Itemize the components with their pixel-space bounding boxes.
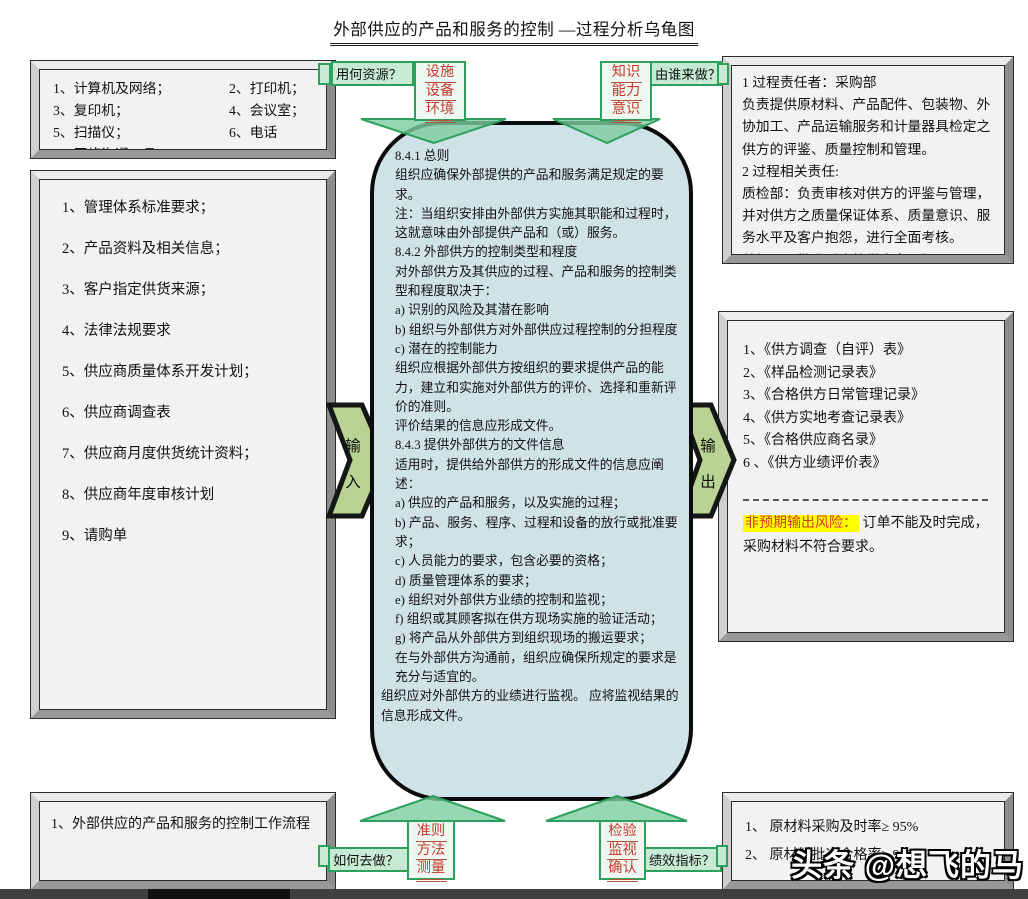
work-flow-box: 1、外部供应的产品和服务的控制工作流程 xyxy=(30,792,336,890)
process-paragraph: 组织应对外部供方的业绩进行监视。 应将监视结果的信息形成文件。 xyxy=(381,687,683,726)
check-arrow-head xyxy=(545,795,689,823)
process-paragraph: c) 人员能力的要求，包含必要的资格； xyxy=(395,552,683,571)
responsibility-line: 2 过程相关责任: xyxy=(742,161,996,183)
stem-word: 方法 xyxy=(416,843,447,861)
work-flow-box-bevel: 1、外部供应的产品和服务的控制工作流程 xyxy=(31,793,335,889)
output-arrow-label: 输 出 xyxy=(693,429,723,501)
inputs-box-bevel: 1、管理体系标准要求；2、产品资料及相关信息；3、客户指定供货来源；4、法律法规… xyxy=(31,171,335,718)
output-char-2: 出 xyxy=(693,465,723,501)
input-char-2: 入 xyxy=(338,465,368,501)
resources-list: 1、计算机及网络；2、打印机；3、复印机；4、会议室；5、扫描仪；6、电话7、网… xyxy=(39,69,327,150)
responsibility-text: 1 过程责任者：采购部负责提供原材料、产品配件、包装物、外协加工、产品运输服务和… xyxy=(731,65,1005,255)
stem-word: 环境 xyxy=(425,102,456,123)
process-paragraph: a) 供应的产品和服务，以及实施的过程； xyxy=(395,494,683,513)
responsibility-box-bevel: 1 过程责任者：采购部负责提供原材料、产品配件、包装物、外协加工、产品运输服务和… xyxy=(723,57,1013,263)
question-who: 由谁来做？ xyxy=(650,61,723,86)
who-arrow-head xyxy=(552,118,662,145)
stem-word: 设备 xyxy=(425,84,456,102)
kpi-item: 1、 原材料采购及时率≥ 95% xyxy=(745,814,998,842)
connector-handle xyxy=(318,845,330,867)
input-item: 1、管理体系标准要求； xyxy=(62,197,318,219)
check-arrow-stem: 检验监视确认 xyxy=(599,820,646,880)
work-flow-list: 1、外部供应的产品和服务的控制工作流程 xyxy=(39,801,327,881)
stem-word: 监视 xyxy=(607,843,638,861)
responsibility-box: 1 过程责任者：采购部负责提供原材料、产品配件、包装物、外协加工、产品运输服务和… xyxy=(722,56,1014,264)
stem-word: 确认 xyxy=(607,861,638,882)
risk-highlight-label: 非预期输出风险： xyxy=(743,515,859,532)
input-item: 7、供应商月度供货统计资料； xyxy=(62,443,318,465)
output-item: 5、《合格供应商名录》 xyxy=(743,430,994,453)
process-paragraph: c) 潜在的控制能力 xyxy=(395,340,683,359)
work-flow-item: 1、外部供应的产品和服务的控制工作流程 xyxy=(51,814,320,835)
outputs-list: 1、《供方调查（自评）表》2、《样品检测记录表》3、《合格供方日常管理记录》4、… xyxy=(743,340,994,475)
dashed-divider xyxy=(743,499,988,501)
process-paragraph: 对外部供方及其供应的过程、产品和服务的控制类型和程度取决于： xyxy=(395,263,683,302)
stem-word: 意识 xyxy=(611,102,642,123)
question-kpi: 绩效指标？ xyxy=(644,847,722,872)
connector-handle xyxy=(717,63,729,85)
responsibility-line: 负责提供原材料、产品配件、包装物、外协加工、产品运输服务和计量器具检定之供方的评… xyxy=(742,94,996,161)
resources-box-bevel: 1、计算机及网络；2、打印机；3、复印机；4、会议室；5、扫描仪；6、电话7、网… xyxy=(31,61,335,158)
process-paragraph: 8.4.3 提供外部供方的文件信息 xyxy=(395,436,683,455)
input-item: 5、供应商质量体系开发计划； xyxy=(62,361,318,383)
output-item: 1、《供方调查（自评）表》 xyxy=(743,340,994,363)
inputs-box: 1、管理体系标准要求；2、产品资料及相关信息；3、客户指定供货来源；4、法律法规… xyxy=(30,170,336,719)
watermark: 头条 @想飞的马 xyxy=(791,840,1024,885)
stem-word: 准则 xyxy=(416,824,447,842)
resource-item: 6、电话 xyxy=(229,122,322,144)
stem-word: 测量 xyxy=(416,861,447,882)
input-item: 3、客户指定供货来源； xyxy=(62,279,318,301)
process-paragraph: b) 组织与外部供方对外部供应过程控制的分担程度 xyxy=(395,321,683,340)
process-paragraph: g) 将产品从外部供方到组织现场的搬运要求； xyxy=(395,629,683,648)
process-paragraph: 组织应根据外部供方按组织的要求提供产品的能力，建立和实施对外部供方的评价、选择和… xyxy=(395,359,683,417)
outputs-content: 1、《供方调查（自评）表》2、《样品检测记录表》3、《合格供方日常管理记录》4、… xyxy=(727,320,1005,633)
output-item: 4、《供方实地考查记录表》 xyxy=(743,408,994,431)
stem-word: 设施 xyxy=(425,65,456,83)
bottom-scrollbar[interactable] xyxy=(0,889,1028,899)
connector-handle xyxy=(716,845,728,867)
process-paragraph: 8.4.1 总则 xyxy=(395,147,683,166)
stem-word: 能力 xyxy=(611,84,642,102)
input-item: 6、供应商调查表 xyxy=(62,402,318,424)
who-arrow-stem: 知识能力意识 xyxy=(600,61,652,121)
input-item: 9、请购单 xyxy=(62,525,318,547)
process-paragraph: b) 产品、服务、程序、过程和设备的放行或批准要求； xyxy=(395,514,683,553)
method-arrow-head xyxy=(359,795,507,823)
process-paragraph: 在与外部供方沟通前，组织应确保所规定的要求是充分与适宜的。 xyxy=(395,649,683,688)
input-arrow-label: 输 入 xyxy=(338,429,368,501)
output-item: 6 、《供方业绩评价表》 xyxy=(743,453,994,476)
resource-item: 5、扫描仪； xyxy=(53,122,229,144)
process-body: 8.4.1 总则组织应确保外部提供的产品和服务满足规定的要求。注：当组织安排由外… xyxy=(370,121,693,801)
output-item: 2、《样品检测记录表》 xyxy=(743,363,994,386)
inputs-list: 1、管理体系标准要求；2、产品资料及相关信息；3、客户指定供货来源；4、法律法规… xyxy=(39,179,327,710)
resources-box: 1、计算机及网络；2、打印机；3、复印机；4、会议室；5、扫描仪；6、电话7、网… xyxy=(30,60,336,159)
diagram-title: 外部供应的产品和服务的控制 —过程分析乌龟图 xyxy=(330,16,698,46)
input-char-1: 输 xyxy=(338,429,368,465)
process-paragraph: 组织应确保外部提供的产品和服务满足规定的要求。 xyxy=(395,166,683,205)
resource-item: 4、会议室； xyxy=(229,100,322,122)
process-paragraph: 注：当组织安排由外部供方实施其职能和过程时，这就意味由外部提供产品和（或）服务。 xyxy=(395,205,683,244)
output-char-1: 输 xyxy=(693,429,723,465)
stem-word: 检验 xyxy=(607,824,638,842)
risk-line: 非预期输出风险： 订单不能及时完成， xyxy=(743,512,994,536)
outputs-box-bevel: 1、《供方调查（自评）表》2、《样品检测记录表》3、《合格供方日常管理记录》4、… xyxy=(719,312,1013,641)
process-paragraph: 8.4.2 外部供方的控制类型和程度 xyxy=(395,243,683,262)
outputs-box: 1、《供方调查（自评）表》2、《样品检测记录表》3、《合格供方日常管理记录》4、… xyxy=(718,311,1014,642)
stem-word: 知识 xyxy=(611,65,642,83)
resource-item: 3、复印机； xyxy=(53,100,229,122)
output-item: 3、《合格供方日常管理记录》 xyxy=(743,385,994,408)
process-paragraph: f) 组织或其顾客拟在供方现场实施的验证活动； xyxy=(395,610,683,629)
responsibility-line: 1 过程责任者：采购部 xyxy=(742,72,996,94)
connector-handle xyxy=(318,63,331,85)
input-item: 8、供应商年度审核计划 xyxy=(62,484,318,506)
resource-item: 1、计算机及网络； xyxy=(53,78,229,100)
risk-text: 订单不能及时完成， xyxy=(859,516,989,531)
process-paragraph: e) 组织对外部供方业绩的控制和监视； xyxy=(395,591,683,610)
resources-arrow-stem: 设施设备环境 xyxy=(414,61,466,121)
process-paragraph: d) 质量管理体系的要求； xyxy=(395,572,683,591)
process-paragraph: 评价结果的信息应形成文件。 xyxy=(395,417,683,436)
input-item: 4、法律法规要求 xyxy=(62,320,318,342)
resource-item: 7、网络沟通工具 xyxy=(53,144,229,150)
input-item: 2、产品资料及相关信息； xyxy=(62,238,318,260)
method-arrow-stem: 准则方法测量 xyxy=(407,820,455,880)
process-paragraph: 适用时，提供给外部供方的形成文件的信息应阐述： xyxy=(395,456,683,495)
question-resources: 用何资源？ xyxy=(331,61,414,86)
question-how: 如何去做？ xyxy=(328,847,409,872)
risk-text-2: 采购材料不符合要求。 xyxy=(743,536,994,560)
scrollbar-thumb[interactable] xyxy=(148,889,290,899)
turtle-process-diagram: 外部供应的产品和服务的控制 —过程分析乌龟图 1、计算机及网络；2、打印机；3、… xyxy=(0,0,1028,899)
responsibility-line: 总经理：批准《合格供方名录》。 xyxy=(742,250,996,255)
responsibility-line: 质检部：负责审核对供方的评鉴与管理，并对供方之质量保证体系、质量意识、服务水平及… xyxy=(742,183,996,250)
resource-item: 2、打印机； xyxy=(229,78,322,100)
process-paragraph: a) 识别的风险及其潜在影响 xyxy=(395,301,683,320)
